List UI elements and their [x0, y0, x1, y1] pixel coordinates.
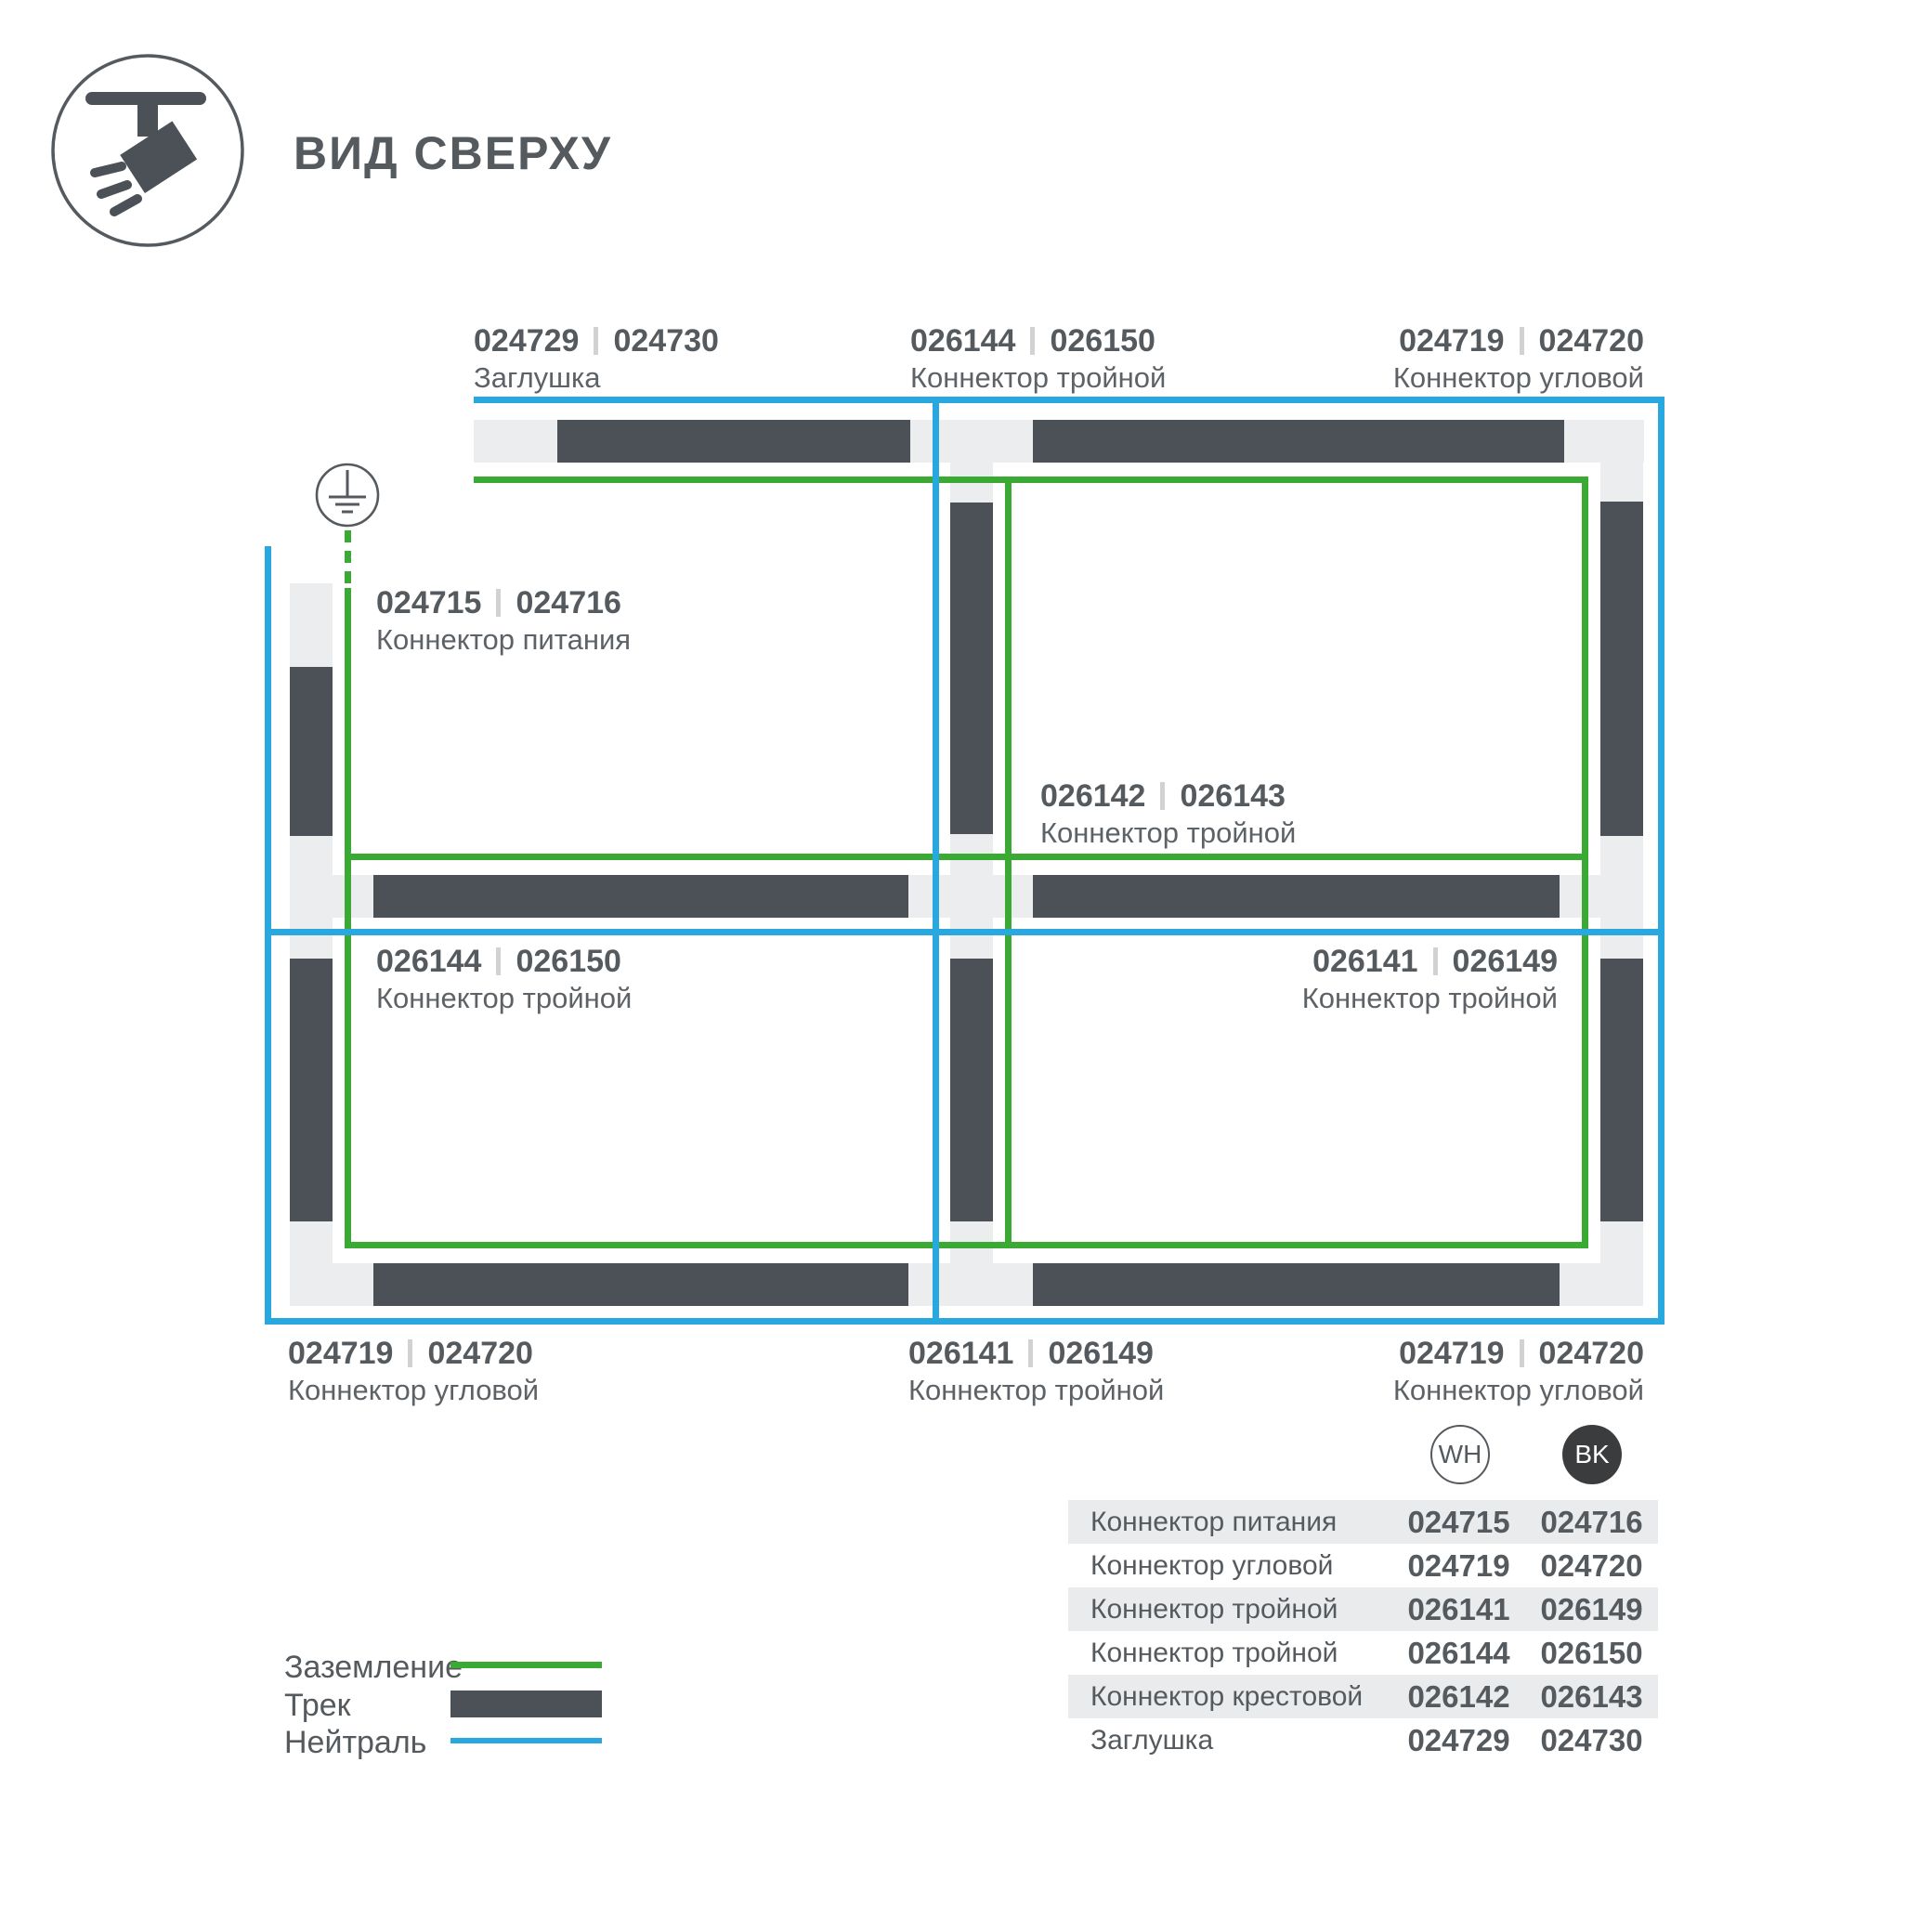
triple-connector-piece — [1560, 875, 1600, 918]
part-code: 024719 — [288, 1336, 393, 1371]
row-code-wh: 026144 — [1392, 1636, 1525, 1671]
code-separator — [1160, 782, 1165, 810]
triple-connector-piece — [910, 420, 1033, 463]
table-row: Заглушка 024729 024730 — [1068, 1718, 1658, 1762]
row-code-wh: 026142 — [1392, 1679, 1525, 1715]
parts-table: Коннектор питания 024715 024716 Коннекто… — [1068, 1500, 1658, 1762]
part-name: Коннектор угловой — [1393, 361, 1644, 395]
part-code: 024716 — [516, 585, 620, 620]
row-code-wh: 026141 — [1392, 1592, 1525, 1627]
legend-track-label: Трек — [284, 1688, 351, 1724]
triple-connector-piece — [333, 875, 373, 918]
part-code: 026142 — [1040, 778, 1145, 814]
ground-line — [345, 588, 351, 1248]
color-badge-black: BK — [1562, 1425, 1622, 1484]
triple-connector-piece — [290, 836, 333, 959]
track-segment — [1033, 420, 1564, 463]
part-code: 026150 — [1050, 323, 1155, 359]
row-code-bk: 026150 — [1525, 1636, 1658, 1671]
neutral-line — [265, 929, 1664, 935]
legend-ground-label: Заземление — [284, 1650, 463, 1686]
corner-connector-piece — [1600, 1221, 1643, 1306]
part-code: 026144 — [376, 944, 481, 979]
code-separator — [1030, 327, 1035, 355]
part-code: 024720 — [1539, 323, 1644, 359]
legend-neutral-label: Нейтраль — [284, 1725, 426, 1761]
corner-connector-piece — [333, 1263, 373, 1306]
ground-line — [345, 1242, 1588, 1248]
table-row: Коннектор крестовой 026142 026143 — [1068, 1675, 1658, 1718]
part-code: 024720 — [427, 1336, 532, 1371]
row-code-bk: 026143 — [1525, 1679, 1658, 1715]
code-separator — [1433, 947, 1438, 975]
label-triple-connector-mid-left: 026144026150 Коннектор тройной — [376, 944, 632, 1015]
part-code: 026143 — [1180, 778, 1285, 814]
label-corner-connector-top-right: 024719024720 Коннектор угловой — [1393, 323, 1644, 395]
row-name: Коннектор крестовой — [1068, 1681, 1392, 1713]
corner-connector-piece — [1564, 420, 1644, 463]
page: ВИД СВЕРХУ — [0, 0, 1932, 1932]
label-corner-connector-bottom-left: 024719024720 Коннектор угловой — [288, 1336, 539, 1407]
power-connector-piece — [290, 583, 333, 667]
code-separator — [496, 589, 501, 617]
code-separator — [1028, 1339, 1033, 1367]
row-name: Коннектор угловой — [1068, 1550, 1392, 1582]
part-code: 026150 — [516, 944, 620, 979]
label-corner-connector-bottom-right: 024719024720 Коннектор угловой — [1393, 1336, 1644, 1407]
corner-connector-piece — [1600, 462, 1643, 503]
part-name: Коннектор тройной — [908, 1374, 1164, 1407]
ground-line — [474, 476, 1588, 483]
end-cap-piece — [474, 420, 557, 463]
triple-connector-piece — [908, 1263, 1033, 1306]
part-name: Коннектор угловой — [288, 1374, 539, 1407]
part-name: Заглушка — [474, 361, 719, 395]
corner-connector-piece — [1560, 1263, 1600, 1306]
row-name: Заглушка — [1068, 1725, 1392, 1756]
ground-symbol-icon — [314, 462, 382, 529]
table-row: Коннектор тройной 026144 026150 — [1068, 1631, 1658, 1675]
label-triple-connector-bottom: 026141026149 Коннектор тройной — [908, 1336, 1164, 1407]
row-code-bk: 024716 — [1525, 1505, 1658, 1540]
label-end-cap: 024729024730 Заглушка — [474, 323, 719, 395]
part-code: 026141 — [908, 1336, 1013, 1371]
legend-track-swatch — [450, 1690, 602, 1717]
track-segment — [1033, 875, 1560, 918]
table-row: Коннектор питания 024715 024716 — [1068, 1500, 1658, 1544]
row-name: Коннектор питания — [1068, 1507, 1392, 1538]
ground-line — [1582, 476, 1588, 1248]
ground-line — [345, 854, 1588, 860]
code-separator — [496, 947, 501, 975]
code-separator — [1520, 1339, 1524, 1367]
part-name: Коннектор тройной — [1040, 816, 1296, 850]
part-code: 026141 — [1312, 944, 1417, 979]
neutral-line — [265, 1318, 1664, 1325]
row-code-bk: 024720 — [1525, 1548, 1658, 1584]
part-code: 024720 — [1539, 1336, 1644, 1371]
corner-connector-piece — [290, 1221, 333, 1306]
legend-ground-swatch — [450, 1662, 602, 1668]
row-code-bk: 026149 — [1525, 1592, 1658, 1627]
table-row: Коннектор угловой 024719 024720 — [1068, 1544, 1658, 1587]
code-separator — [408, 1339, 412, 1367]
neutral-line — [933, 397, 939, 1325]
part-name: Коннектор тройной — [1302, 982, 1558, 1015]
track-segment — [950, 959, 993, 1221]
table-row: Коннектор тройной 026141 026149 — [1068, 1587, 1658, 1631]
row-code-bk: 024730 — [1525, 1723, 1658, 1758]
part-name: Коннектор тройной — [376, 982, 632, 1015]
part-code: 026144 — [910, 323, 1015, 359]
part-code: 024719 — [1399, 323, 1504, 359]
track-segment — [290, 959, 333, 1221]
row-code-wh: 024715 — [1392, 1505, 1525, 1540]
track-segment — [373, 875, 908, 918]
neutral-line — [1658, 397, 1664, 1325]
label-power-connector: 024715024716 Коннектор питания — [376, 585, 631, 657]
label-cross-connector: 026142026143 Коннектор тройной — [1040, 778, 1296, 850]
part-code: 024729 — [474, 323, 579, 359]
neutral-line — [265, 546, 271, 1325]
ground-line — [1005, 476, 1012, 1248]
part-name: Коннектор тройной — [910, 361, 1166, 395]
row-code-wh: 024729 — [1392, 1723, 1525, 1758]
part-code: 024715 — [376, 585, 481, 620]
part-code: 026149 — [1453, 944, 1558, 979]
track-segment — [373, 1263, 908, 1306]
part-code: 026149 — [1048, 1336, 1153, 1371]
track-segment — [1033, 1263, 1560, 1306]
legend-neutral-swatch — [450, 1738, 602, 1743]
track-segment — [557, 420, 910, 463]
part-name: Коннектор угловой — [1393, 1374, 1644, 1407]
part-name: Коннектор питания — [376, 623, 631, 657]
triple-connector-piece — [1600, 836, 1643, 959]
label-triple-connector-top: 026144026150 Коннектор тройной — [910, 323, 1166, 395]
color-badge-white: WH — [1430, 1425, 1490, 1484]
label-triple-connector-mid-right: 026141026149 Коннектор тройной — [1302, 944, 1558, 1015]
neutral-line — [474, 397, 1664, 403]
track-segment — [290, 667, 333, 836]
row-name: Коннектор тройной — [1068, 1594, 1392, 1625]
code-separator — [594, 327, 598, 355]
part-code: 024730 — [613, 323, 718, 359]
ground-line-dashed — [345, 530, 351, 588]
track-segment — [1600, 959, 1643, 1221]
track-segment — [950, 503, 993, 834]
row-name: Коннектор тройной — [1068, 1638, 1392, 1669]
track-segment — [1600, 502, 1643, 836]
code-separator — [1520, 327, 1524, 355]
row-code-wh: 024719 — [1392, 1548, 1525, 1584]
part-code: 024719 — [1399, 1336, 1504, 1371]
